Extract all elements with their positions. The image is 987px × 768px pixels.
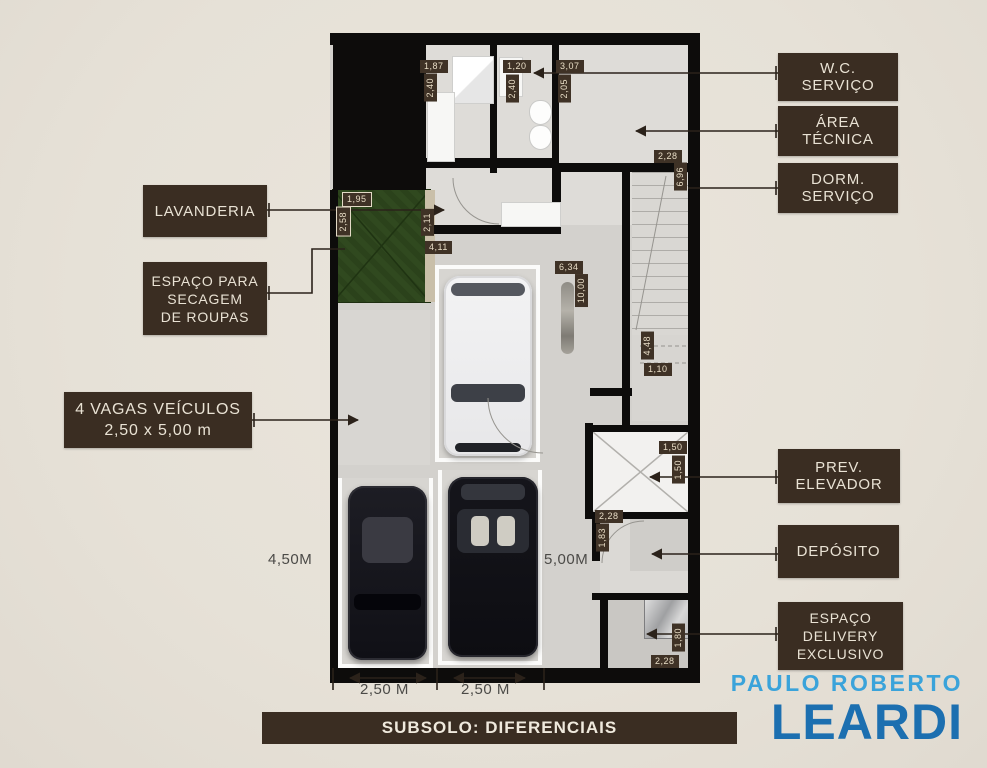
toilet-icon	[530, 126, 551, 149]
dimension-label: 6,34	[555, 261, 583, 274]
parking-stall-center	[435, 265, 540, 462]
brand-name: LEARDI	[731, 697, 963, 747]
dimension-label: 4,48	[641, 332, 654, 360]
empty-parking-stall	[337, 310, 430, 465]
footer-title: SUBSOLO: DIFERENCIAIS	[382, 718, 617, 738]
callout-line: DELIVERY	[803, 627, 878, 645]
dimension-label: 2,40	[424, 74, 437, 102]
dimension-label: 1,20	[503, 60, 531, 73]
wall-right	[688, 33, 700, 683]
bench-bed	[502, 203, 560, 226]
callout-line: PREV.	[815, 459, 863, 476]
car-hood	[461, 484, 526, 500]
top-left-block	[333, 42, 418, 190]
dimension-label: 10,00	[575, 274, 588, 307]
wall-dep-bottom	[592, 593, 700, 600]
callout-line: DEPÓSITO	[797, 543, 881, 560]
car-windshield-seats	[457, 509, 529, 552]
dimension-label: 1,87	[420, 60, 448, 73]
appliance-column	[428, 93, 454, 161]
measurement-text: 5,00M	[544, 551, 588, 568]
white-car	[444, 276, 532, 456]
wall-top	[330, 33, 700, 45]
dimension-label: 2,28	[651, 655, 679, 668]
car-windshield	[451, 384, 525, 402]
wall-elev-left	[585, 423, 593, 513]
toilet-icon	[530, 101, 551, 124]
callout-espaco-secagem: ESPAÇO PARA SECAGEM DE ROUPAS	[143, 262, 267, 335]
dimension-label: 2,11	[421, 209, 434, 236]
callout-line: SECAGEM	[167, 290, 243, 308]
parking-stall-right	[438, 470, 542, 665]
dimension-label: 3,07	[556, 60, 584, 73]
callout-line: ESPAÇO PARA	[151, 272, 258, 290]
callout-line: LAVANDERIA	[155, 203, 256, 220]
dimension-label: 2,40	[506, 75, 519, 103]
callout-espaco-delivery: ESPAÇO DELIVERY EXCLUSIVO	[778, 602, 903, 670]
dimension-label: 6,96	[674, 163, 687, 191]
dimension-label: 1,10	[644, 363, 672, 376]
callout-deposito: DEPÓSITO	[778, 525, 899, 578]
dimension-label: 2,58	[336, 207, 351, 237]
parking-stall-left	[338, 478, 433, 668]
dimension-label: 2,05	[558, 75, 571, 103]
staircase	[632, 172, 688, 335]
dimension-label: 1,80	[672, 624, 685, 652]
car-seat	[497, 516, 516, 545]
car-rear-window	[451, 283, 525, 296]
callout-line: DE ROUPAS	[161, 308, 250, 326]
wall-elev-top	[585, 425, 688, 432]
car-grille	[455, 443, 522, 452]
motorcycle	[561, 282, 574, 354]
dimension-label: 4,11	[425, 241, 452, 254]
dimension-label: 1,83	[596, 524, 609, 552]
callout-prev-elevador: PREV. ELEVADOR	[778, 449, 900, 503]
dimension-label: 1,50	[659, 441, 687, 454]
callout-line: SERVIÇO	[802, 77, 875, 94]
callout-dorm-servico: DORM. SERVIÇO	[778, 163, 898, 213]
dimension-label: 1,50	[672, 456, 685, 484]
callout-area-tecnica: ÁREA TÉCNICA	[778, 106, 898, 156]
callout-line: W.C.	[820, 60, 856, 77]
brand-logo: PAULO ROBERTO LEARDI	[731, 672, 963, 747]
measurement-text: 2,50 M	[461, 681, 510, 698]
measurement-text: 4,50M	[268, 551, 312, 568]
callout-line: 4 VAGAS VEÍCULOS	[75, 399, 240, 420]
callout-line: SERVIÇO	[802, 188, 875, 205]
callout-line: EXCLUSIVO	[797, 645, 884, 663]
footer-title-bar: SUBSOLO: DIFERENCIAIS	[262, 712, 737, 744]
callout-4-vagas: 4 VAGAS VEÍCULOS 2,50 x 5,00 m	[64, 392, 252, 448]
dimension-label: 2,28	[595, 510, 623, 523]
dimension-label: 2,28	[654, 150, 682, 163]
callout-line: ELEVADOR	[796, 476, 883, 493]
dimension-label: 1,95	[342, 192, 372, 207]
car-seat	[471, 516, 490, 545]
wall-left	[330, 190, 338, 683]
callout-line: 2,50 x 5,00 m	[104, 420, 211, 441]
deposito-inner-floor	[630, 519, 688, 571]
laundry-counter	[453, 57, 493, 103]
callout-line: ÁREA	[816, 114, 860, 131]
callout-line: DORM.	[811, 171, 865, 188]
dark-car	[448, 477, 538, 657]
measurement-text: 2,50 M	[360, 681, 409, 698]
wall-delivery-left	[600, 595, 608, 675]
brand-top-text: PAULO ROBERTO	[731, 672, 963, 695]
callout-wc-servico: W.C. SERVIÇO	[778, 53, 898, 101]
wall-under-stairs	[590, 388, 632, 396]
black-car	[348, 486, 427, 660]
callout-lavanderia: LAVANDERIA	[143, 185, 267, 237]
car-windshield	[354, 594, 420, 610]
wall-h3	[425, 225, 560, 234]
car-roof	[362, 517, 413, 562]
callout-line: TÉCNICA	[802, 131, 873, 148]
callout-line: ESPAÇO	[809, 609, 871, 627]
